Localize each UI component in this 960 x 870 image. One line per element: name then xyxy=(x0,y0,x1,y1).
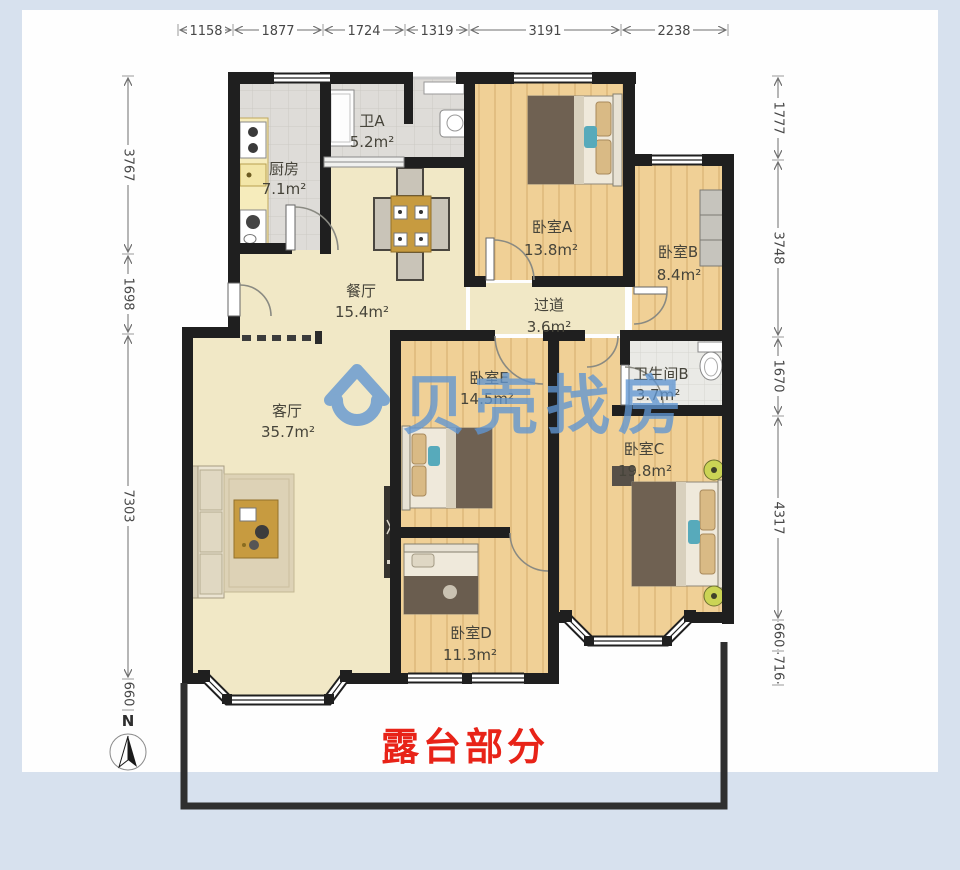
room-label-bedroomD: 卧室D xyxy=(450,624,492,642)
room-label-bedroomA: 卧室A xyxy=(532,218,573,236)
floorplan-page: 厨房 7.1m² 卫A 5.2m² 餐厅 15.4m² 卧室A 13.8m² 卧… xyxy=(0,0,960,870)
dim-right-5: 716 xyxy=(771,656,786,681)
dim-top-3: 1319 xyxy=(420,24,453,39)
dim-left-3: 660 xyxy=(121,682,136,707)
room-label-hallway: 过道 xyxy=(534,296,564,314)
dim-right-3: 4317 xyxy=(771,501,786,534)
dimensions-top: 1158 1877 1724 1319 3191 2238 xyxy=(178,22,728,39)
dim-top-0: 1158 xyxy=(189,24,222,39)
room-area-hallway: 3.6m² xyxy=(527,318,571,336)
dim-top-5: 2238 xyxy=(657,24,690,39)
room-area-bedroomD: 11.3m² xyxy=(443,646,497,664)
room-label-bathA: 卫A xyxy=(359,112,385,130)
bed-bedroomA xyxy=(528,94,622,186)
dim-top-2: 1724 xyxy=(347,24,380,39)
dimensions-right: 1777 3748 1670 4317 660 716 xyxy=(770,76,786,685)
room-area-bedroomA: 13.8m² xyxy=(524,241,578,259)
dim-right-4: 660 xyxy=(771,623,786,648)
bed-bedroomD xyxy=(404,544,478,614)
dim-left-1: 1698 xyxy=(121,277,136,310)
compass: N xyxy=(110,712,146,770)
dim-right-2: 1670 xyxy=(771,359,786,392)
room-label-living: 客厅 xyxy=(272,402,302,420)
dim-top-4: 3191 xyxy=(528,24,561,39)
dimensions-left: 3767 1698 7303 660 xyxy=(120,76,136,710)
room-label-kitchen: 厨房 xyxy=(269,160,299,178)
dim-left-2: 7303 xyxy=(121,489,136,522)
room-area-bathA: 5.2m² xyxy=(350,133,394,151)
watermark-text: 贝壳找房 xyxy=(402,370,690,444)
dim-right-1: 3748 xyxy=(771,231,786,264)
room-area-kitchen: 7.1m² xyxy=(262,180,306,198)
dim-left-0: 3767 xyxy=(121,148,136,181)
room-area-living: 35.7m² xyxy=(261,423,315,441)
dim-top-1: 1877 xyxy=(261,24,294,39)
north-label: N xyxy=(122,712,135,730)
dim-right-0: 1777 xyxy=(771,101,786,134)
floorplan-drawing: 厨房 7.1m² 卫A 5.2m² 餐厅 15.4m² 卧室A 13.8m² 卧… xyxy=(0,0,960,870)
room-area-dining: 15.4m² xyxy=(335,303,389,321)
coffee-table xyxy=(234,500,278,558)
room-area-bedroomC: 19.8m² xyxy=(618,462,672,480)
toilet-bathroomB xyxy=(698,342,724,380)
room-label-bedroomB: 卧室B xyxy=(658,243,698,261)
room-label-dining: 餐厅 xyxy=(346,282,376,300)
terrace-label: 露台部分 xyxy=(381,725,549,769)
room-area-bedroomB: 8.4m² xyxy=(657,266,701,284)
